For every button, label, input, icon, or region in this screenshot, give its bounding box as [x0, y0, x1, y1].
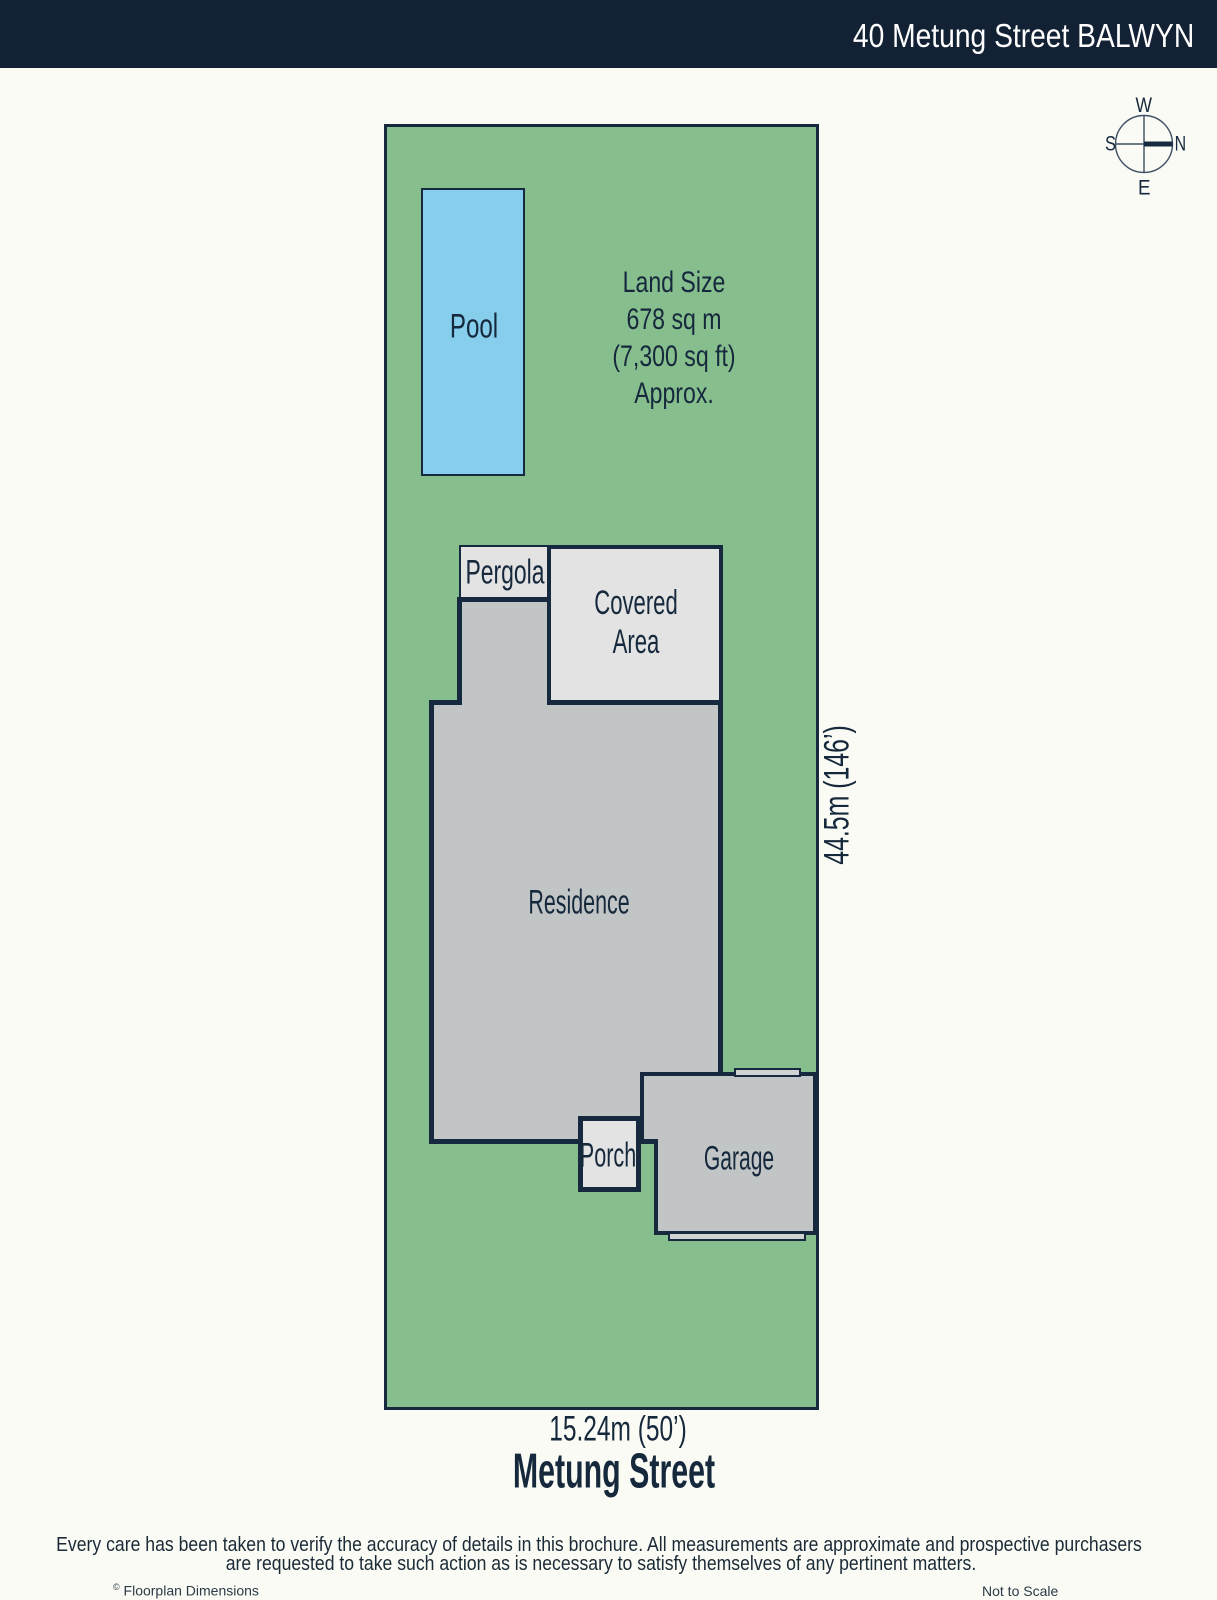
- svg-text:W: W: [1136, 95, 1153, 117]
- svg-text:N: N: [1175, 131, 1187, 155]
- svg-text:E: E: [1138, 176, 1151, 200]
- svg-text:S: S: [1105, 131, 1116, 155]
